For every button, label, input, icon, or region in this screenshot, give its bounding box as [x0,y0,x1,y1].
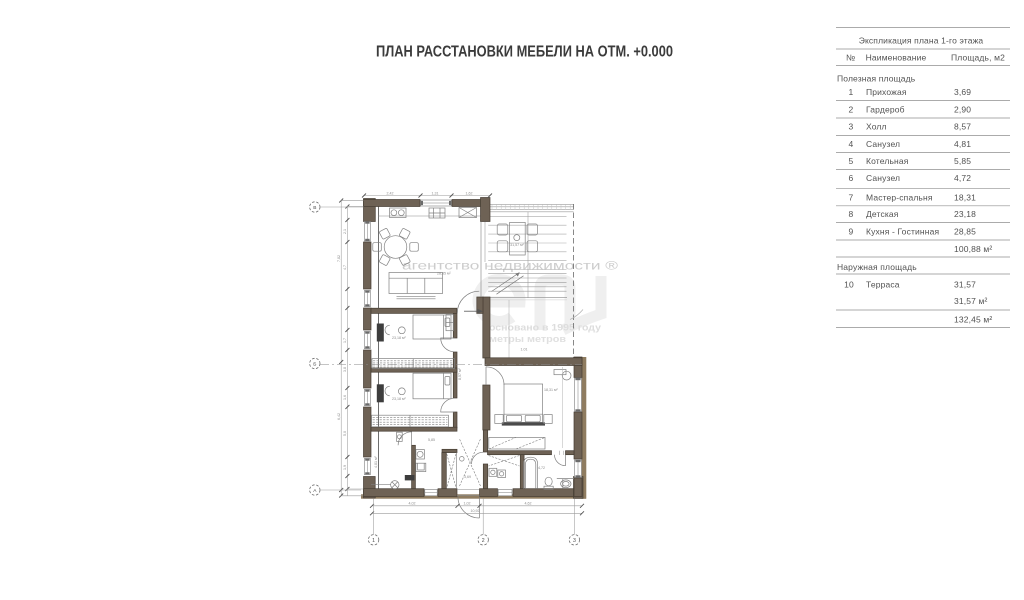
svg-text:Санузел: Санузел [866,173,900,183]
svg-text:№: № [846,53,855,63]
svg-text:1: 1 [372,538,375,544]
svg-text:23,18 м²: 23,18 м² [392,336,406,340]
svg-text:Котельная: Котельная [866,156,909,166]
svg-text:3,8: 3,8 [343,367,347,372]
svg-text:2,42: 2,42 [387,192,394,196]
svg-text:4,02: 4,02 [409,501,416,505]
svg-text:5,0: 5,0 [343,431,347,436]
svg-text:7,82: 7,82 [337,255,341,262]
svg-text:100,88 м²: 100,88 м² [954,244,992,254]
svg-text:1,6: 1,6 [343,395,347,400]
svg-text:6: 6 [849,173,854,183]
svg-text:Полезная площадь: Полезная площадь [837,74,916,84]
svg-text:2,1: 2,1 [343,229,347,234]
svg-text:4,81: 4,81 [954,139,971,149]
svg-text:2,90: 2,90 [954,105,971,115]
svg-text:18,31 м²: 18,31 м² [544,388,558,392]
svg-text:Наружная площадь: Наружная площадь [837,262,917,272]
svg-text:агентство недвижимости ®: агентство недвижимости ® [402,261,619,273]
svg-text:31,57: 31,57 [954,280,976,290]
svg-text:Холл: Холл [866,122,887,132]
svg-text:Гардероб: Гардероб [866,105,905,115]
svg-text:5: 5 [849,156,854,166]
svg-text:4,7: 4,7 [343,265,347,270]
svg-text:метры метров: метры метров [489,334,566,345]
svg-text:1,02: 1,02 [464,501,471,505]
svg-text:7: 7 [849,193,854,203]
svg-text:3,69: 3,69 [954,87,971,97]
svg-text:1: 1 [849,87,854,97]
svg-text:4: 4 [849,139,854,149]
svg-text:В: В [313,205,316,211]
svg-text:3: 3 [573,538,576,544]
svg-text:2: 2 [849,105,854,115]
svg-text:1,9: 1,9 [343,465,347,470]
svg-text:5,85: 5,85 [954,156,971,166]
svg-text:5,85: 5,85 [428,438,435,442]
svg-text:4,81 м²: 4,81 м² [374,456,378,468]
svg-text:4,72: 4,72 [538,466,545,470]
svg-text:Кухня - Гостинная: Кухня - Гостинная [866,227,939,237]
svg-text:132,45 м²: 132,45 м² [954,315,992,325]
svg-text:Площадь, м2: Площадь, м2 [951,53,1005,63]
svg-text:3,69: 3,69 [464,475,471,479]
svg-text:8,57 м²: 8,57 м² [458,368,462,380]
svg-text:1,62: 1,62 [466,192,473,196]
svg-text:31,57 м²: 31,57 м² [510,243,524,247]
svg-text:31,57 м²: 31,57 м² [954,296,988,306]
svg-text:1.01: 1.01 [521,348,528,352]
svg-text:4,72: 4,72 [954,173,971,183]
svg-text:10: 10 [844,280,854,290]
svg-text:Наименование: Наименование [866,53,927,63]
svg-text:3: 3 [849,122,854,132]
svg-text:Терраса: Терраса [866,280,900,290]
svg-text:23,18 м²: 23,18 м² [392,397,406,401]
svg-text:6,42: 6,42 [337,413,341,420]
svg-text:10,92: 10,92 [471,509,480,513]
svg-text:ПЛАН РАССТАНОВКИ МЕБЕЛИ НА ОТМ: ПЛАН РАССТАНОВКИ МЕБЕЛИ НА ОТМ. +0.000 [376,44,673,61]
svg-text:основано в 1995 году: основано в 1995 году [489,323,602,334]
svg-text:2: 2 [482,538,485,544]
svg-text:Санузел: Санузел [866,139,900,149]
svg-text:1,31: 1,31 [432,192,439,196]
svg-text:8: 8 [849,209,854,219]
svg-text:28,85 м²: 28,85 м² [437,272,451,276]
svg-text:9: 9 [849,227,854,237]
svg-text:Мастер-спальня: Мастер-спальня [866,193,933,203]
svg-text:Экспликация плана 1-го этажа: Экспликация плана 1-го этажа [859,36,984,46]
svg-text:Прихожая: Прихожая [866,87,907,97]
svg-text:1,7: 1,7 [343,338,347,343]
svg-text:4,62: 4,62 [525,501,532,505]
svg-text:Б: Б [313,362,316,368]
svg-text:23,18: 23,18 [954,209,976,219]
svg-text:18,31: 18,31 [954,193,976,203]
svg-text:Детская: Детская [866,209,899,219]
svg-text:28,85: 28,85 [954,227,976,237]
svg-text:8,57: 8,57 [954,122,971,132]
